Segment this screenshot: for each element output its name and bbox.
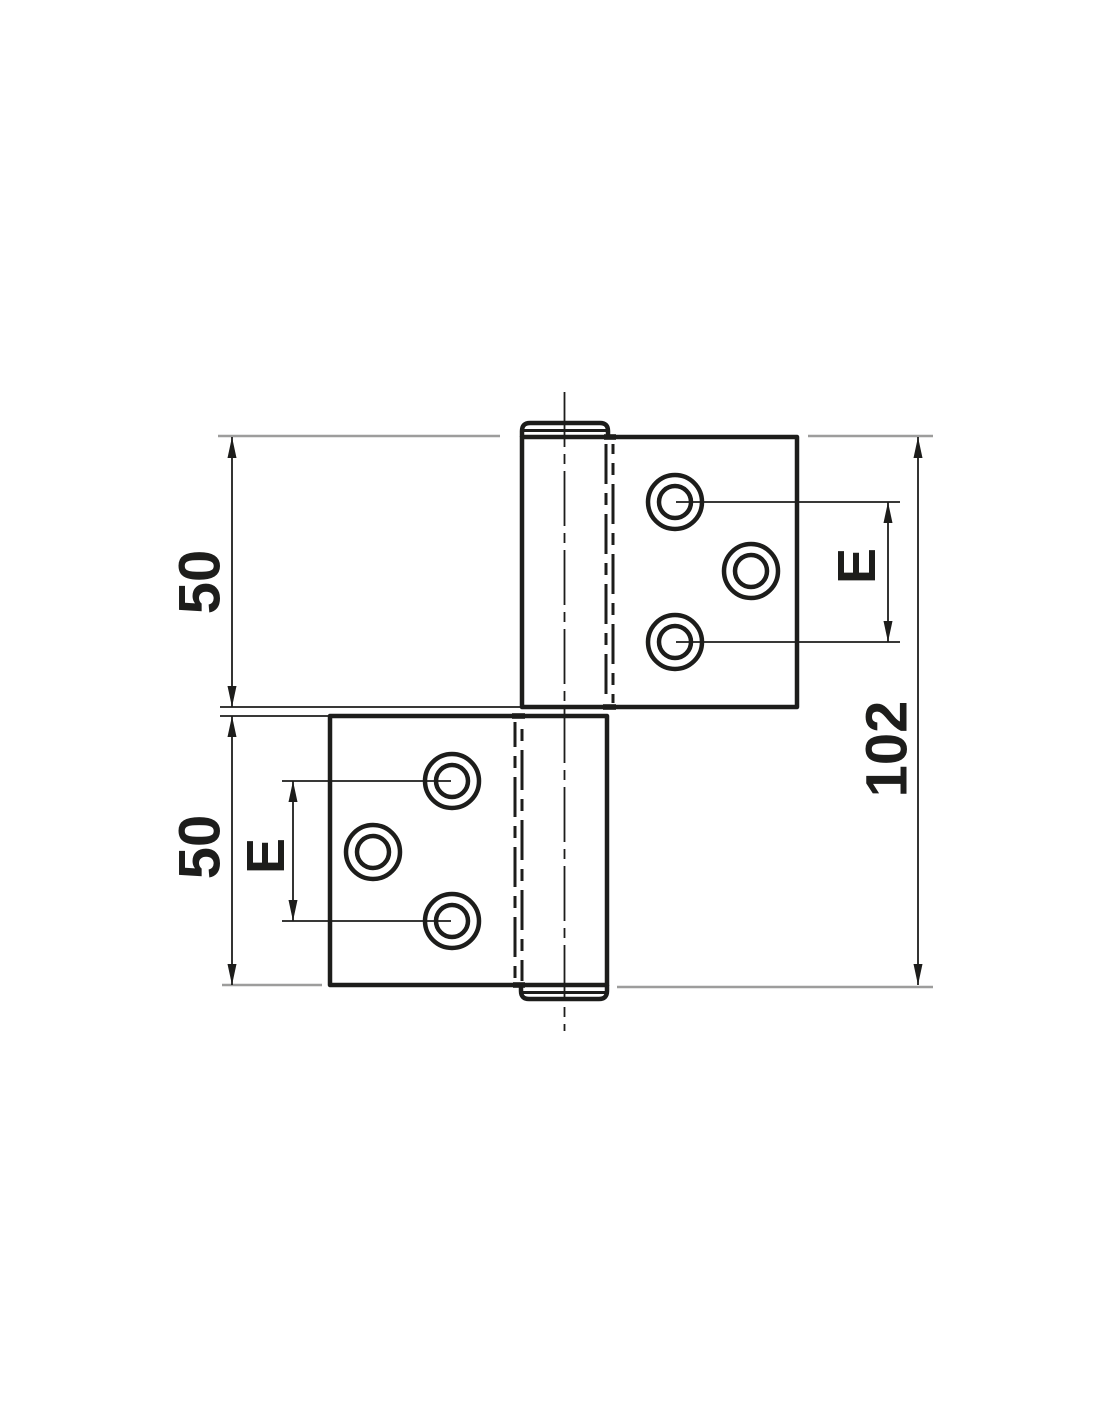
arrowhead-up (884, 502, 893, 523)
knuckle-joint-tick (512, 713, 525, 719)
arrowhead-up (228, 716, 237, 737)
knuckle-joint-tick (604, 434, 616, 440)
dim-label-upper-E: E (827, 548, 887, 584)
knuckle-joint-tick (603, 704, 616, 710)
arrowhead-up (914, 437, 923, 458)
screw-hole-outer (346, 825, 400, 879)
arrowhead-up (289, 781, 298, 802)
screw-hole (724, 544, 778, 598)
dim-label-102: 102 (855, 701, 920, 798)
arrowhead-down (228, 964, 237, 985)
dimension-labels: 50 50 102 E E (168, 548, 920, 879)
screw-hole-inner (357, 836, 389, 868)
arrowhead-down (228, 686, 237, 707)
dimension-lines (232, 437, 918, 985)
arrowhead-down (914, 964, 923, 985)
dim-label-lower-E: E (236, 838, 296, 874)
extension-lines-grey (218, 436, 933, 987)
dim-label-lower-50: 50 (168, 815, 233, 880)
screw-hole-outer (724, 544, 778, 598)
screw-hole (346, 825, 400, 879)
arrowhead-up (228, 437, 237, 458)
screw-hole-inner (735, 555, 767, 587)
arrowhead-down (884, 621, 893, 642)
arrowhead-down (289, 900, 298, 921)
hinge-body (330, 423, 797, 999)
hinge-technical-drawing: 50 50 102 E E (0, 0, 1100, 1422)
dim-label-upper-50: 50 (168, 550, 233, 615)
knuckle-joint-tick (513, 982, 525, 988)
drawing-svg: 50 50 102 E E (0, 0, 1100, 1422)
